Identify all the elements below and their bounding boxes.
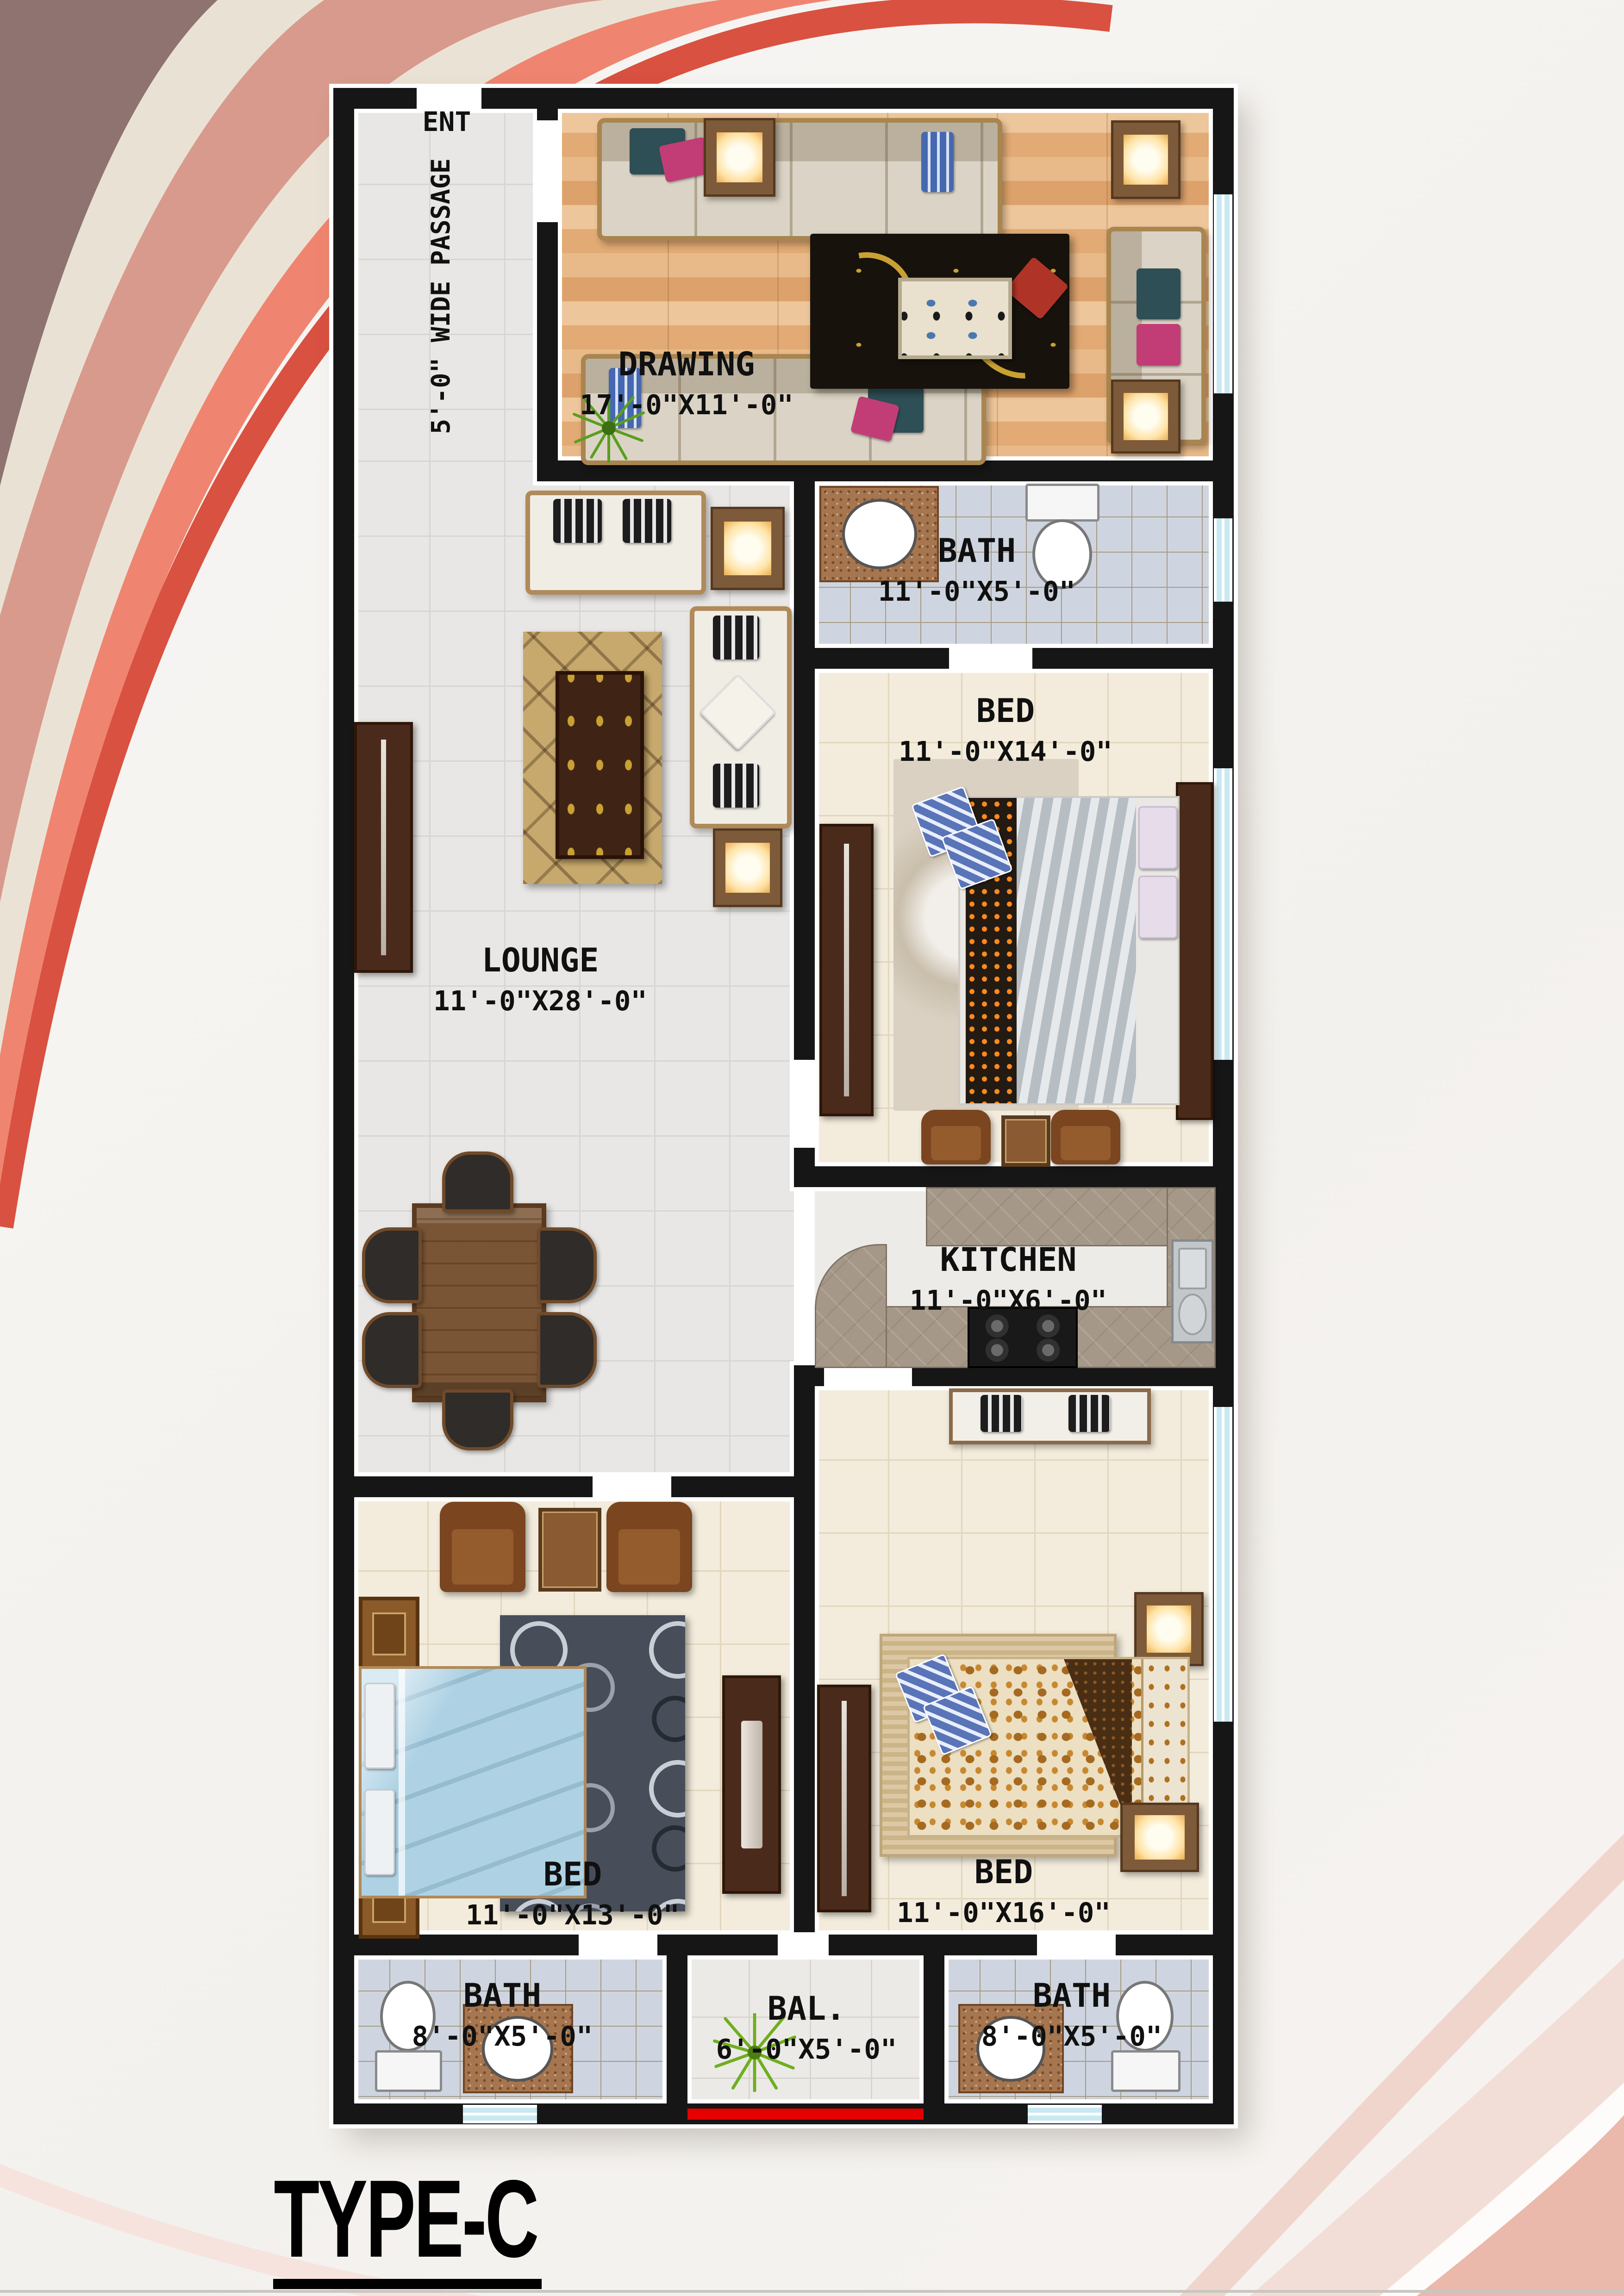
toilet-tank bbox=[1111, 2050, 1181, 2092]
room-dims: 11'-0"X16'-0" bbox=[897, 1894, 1111, 1931]
kitchen-sink bbox=[1171, 1239, 1214, 1344]
wall-balcony-bathright bbox=[924, 1935, 944, 2124]
dining-table bbox=[412, 1203, 546, 1402]
bed-right-lamp-bottom bbox=[1120, 1803, 1199, 1872]
bed-blanket bbox=[997, 798, 1136, 1103]
lounge-lamp-mid bbox=[713, 828, 782, 907]
window-bath-right bbox=[1028, 2105, 1102, 2123]
drawing-lamp-left bbox=[704, 118, 775, 197]
sofa-pillow bbox=[1137, 268, 1181, 319]
room-label-bath-top: BATH 11'-0"X5'-0" bbox=[878, 529, 1075, 610]
wall-lounge-bedleft bbox=[333, 1476, 815, 1497]
drawing-lamp-bottom bbox=[1111, 380, 1181, 454]
room-name: BED bbox=[466, 1853, 680, 1897]
bed-right-wardrobe bbox=[817, 1685, 871, 1912]
plan-title: TYPE-C bbox=[273, 2164, 542, 2289]
sofa-pillow bbox=[553, 499, 602, 543]
bed-right-lamp-top bbox=[1134, 1592, 1204, 1666]
room-name: BATH bbox=[878, 529, 1075, 573]
bed-mid-small-rug bbox=[1001, 1115, 1050, 1167]
door-opening-bath-top bbox=[949, 646, 1032, 671]
bed-mid-headboard bbox=[1176, 782, 1213, 1120]
sofa-pillow bbox=[921, 132, 954, 192]
sofa-pillow bbox=[623, 499, 671, 543]
sofa-pillow bbox=[700, 674, 777, 751]
room-label-bath-right: BATH 8'-0"X5'-0" bbox=[981, 1974, 1162, 2054]
entrance-label: ENT bbox=[423, 106, 471, 137]
bed-cover-wedge bbox=[1035, 1659, 1132, 1835]
room-name: BED bbox=[899, 689, 1112, 733]
bed-pillow bbox=[1138, 876, 1177, 939]
bed-mid-wardrobe bbox=[819, 824, 874, 1116]
room-dims: 11'-0"X28'-0" bbox=[433, 982, 647, 1019]
lounge-wall-unit bbox=[354, 722, 413, 973]
lounge-sofa-long bbox=[690, 606, 792, 828]
wall-bed-kitchen bbox=[794, 1166, 1213, 1187]
room-label-bed-right: BED 11'-0"X16'-0" bbox=[897, 1850, 1111, 1931]
room-name: BAL. bbox=[716, 1987, 897, 2031]
room-dims: 17'-0"X11'-0" bbox=[580, 386, 793, 423]
lounge-coffee-table bbox=[556, 671, 644, 859]
window-bed-right bbox=[1214, 1407, 1232, 1722]
bed-mid-armchair bbox=[921, 1110, 991, 1164]
room-label-bed-left: BED 11'-0"X13'-0" bbox=[466, 1853, 680, 1933]
bed-left-armchair bbox=[440, 1502, 525, 1592]
room-name: LOUNGE bbox=[433, 939, 647, 983]
page: ENT 5'-0" WIDE PASSAGE DRAWING 17'-0"X11… bbox=[0, 0, 1624, 2296]
room-name: BATH bbox=[981, 1974, 1162, 2018]
window-drawing bbox=[1214, 194, 1232, 393]
passage-label: 5'-0" WIDE PASSAGE bbox=[426, 158, 456, 434]
wall-bedright-left bbox=[794, 1386, 815, 1955]
lounge-lamp-top bbox=[711, 507, 785, 590]
wall-bathleft-balcony bbox=[667, 1935, 687, 2124]
room-label-bath-left: BATH 8'-0"X5'-0" bbox=[412, 1974, 593, 2054]
door-opening-bath-right bbox=[1037, 1932, 1116, 1958]
room-label-drawing: DRAWING 17'-0"X11'-0" bbox=[580, 342, 793, 423]
dining-chair bbox=[442, 1389, 513, 1450]
door-opening-drawing bbox=[535, 120, 560, 222]
door-opening-bath-left bbox=[579, 1932, 657, 1958]
balcony-red-line bbox=[687, 2109, 924, 2120]
sofa-pillow bbox=[981, 1395, 1022, 1432]
sofa-pillow bbox=[1068, 1395, 1110, 1432]
lounge-loveseat bbox=[525, 491, 706, 595]
room-dims: 8'-0"X5'-0" bbox=[981, 2017, 1162, 2054]
room-name: KITCHEN bbox=[910, 1238, 1107, 1282]
sofa-pillow bbox=[1137, 324, 1181, 366]
wall-right bbox=[1213, 88, 1234, 2124]
room-dims: 11'-0"X5'-0" bbox=[878, 572, 1075, 610]
room-dims: 11'-0"X14'-0" bbox=[899, 733, 1112, 770]
drawing-lamp-right bbox=[1111, 120, 1181, 199]
bed-blanket-fold bbox=[399, 1669, 405, 1896]
wall-left bbox=[333, 88, 354, 2124]
dining-chair bbox=[362, 1312, 422, 1388]
bed-left-side-table bbox=[359, 1597, 419, 1671]
bed-left-dresser bbox=[722, 1675, 781, 1894]
bed-mid-armchair bbox=[1051, 1110, 1120, 1164]
bed-right-bench bbox=[949, 1388, 1151, 1444]
room-dims: 11'-0"X13'-0" bbox=[466, 1896, 680, 1933]
room-dims: 11'-0"X6'-0" bbox=[910, 1282, 1107, 1319]
room-label-balcony: BAL. 6'-0"X5'-0" bbox=[716, 1987, 897, 2067]
room-name: DRAWING bbox=[580, 342, 793, 386]
room-dims: 8'-0"X5'-0" bbox=[412, 2017, 593, 2054]
dining-chair bbox=[442, 1151, 513, 1213]
sofa-pillow bbox=[713, 764, 759, 808]
bed-left-small-rug bbox=[538, 1508, 601, 1592]
window-bath-top bbox=[1214, 518, 1232, 602]
toilet-tank bbox=[375, 2050, 442, 2092]
room-dims: 6'-0"X5'-0" bbox=[716, 2030, 897, 2067]
dining-chair bbox=[537, 1312, 597, 1388]
room-name: BATH bbox=[412, 1974, 593, 2018]
drawing-coffee-table bbox=[898, 278, 1012, 359]
kitchen-open-side bbox=[794, 1187, 815, 1365]
room-name: BED bbox=[897, 1850, 1111, 1894]
drawing-sofa-top bbox=[597, 118, 1002, 241]
bed-pillow bbox=[364, 1789, 395, 1875]
bed-pillow bbox=[1138, 806, 1177, 869]
room-label-lounge: LOUNGE 11'-0"X28'-0" bbox=[433, 939, 647, 1019]
door-opening-balcony bbox=[778, 1932, 829, 1958]
door-opening-bed-left bbox=[593, 1474, 671, 1500]
window-bath-left bbox=[463, 2105, 537, 2123]
dining-chair bbox=[537, 1227, 597, 1303]
toilet-tank bbox=[1025, 484, 1099, 522]
dining-chair bbox=[362, 1227, 422, 1303]
page-bottom-edge bbox=[0, 2290, 1624, 2293]
room-label-bed-mid: BED 11'-0"X14'-0" bbox=[899, 689, 1112, 770]
window-bed-mid bbox=[1214, 768, 1232, 1060]
bed-pillow bbox=[364, 1683, 395, 1769]
bed-left-armchair bbox=[606, 1502, 692, 1592]
sofa-pillow bbox=[713, 616, 759, 660]
room-label-kitchen: KITCHEN 11'-0"X6'-0" bbox=[910, 1238, 1107, 1319]
door-opening-bed-mid bbox=[792, 1060, 817, 1148]
